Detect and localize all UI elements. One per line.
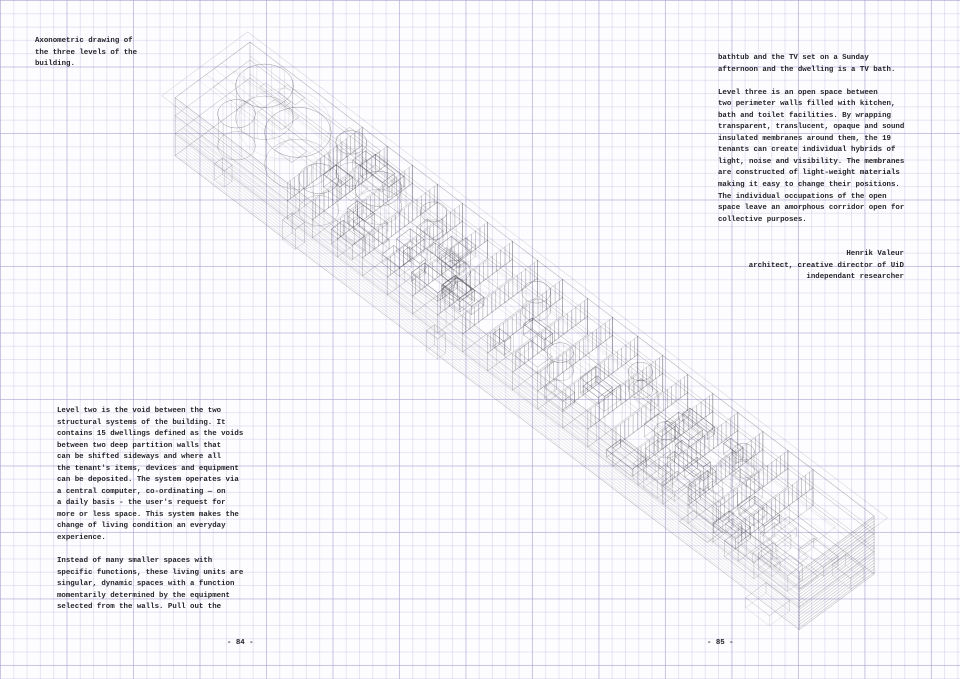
book-spread: Axonometric drawing ofthe three levels o… bbox=[0, 0, 960, 679]
text-line: space leave an amorphous corridor open f… bbox=[718, 203, 906, 215]
text-line: specific functions, these living units a… bbox=[57, 568, 249, 580]
text-line: Level two is the void between the two bbox=[57, 406, 249, 418]
text-line: structural systems of the building. It bbox=[57, 418, 249, 430]
text-line: more or less space. This system makes th… bbox=[57, 510, 249, 522]
text-line: Axonometric drawing of bbox=[35, 36, 155, 48]
text-line: Instead of many smaller spaces with bbox=[57, 556, 249, 568]
text-line: selected from the walls. Pull out the bbox=[57, 602, 249, 614]
text-line: bathtub and the TV set on a Sunday bbox=[718, 53, 906, 65]
text-line: can be shifted sideways and where all bbox=[57, 452, 249, 464]
text-line: experience. bbox=[57, 533, 249, 545]
text-line: momentarily determined by the equipment bbox=[57, 591, 249, 603]
text-line: are constructed of light-weight material… bbox=[718, 168, 906, 180]
text-line: a daily basis - the user's request for bbox=[57, 498, 249, 510]
text-line bbox=[718, 76, 906, 88]
caption-axonometric: Axonometric drawing ofthe three levels o… bbox=[35, 36, 155, 71]
text-line: The individual occupations of the open bbox=[718, 192, 906, 204]
text-line: collective purposes. bbox=[718, 215, 906, 227]
left-column-text: Level two is the void between the twostr… bbox=[57, 406, 249, 614]
text-line: architect, creative director of UiD bbox=[716, 261, 904, 273]
text-line: building. bbox=[35, 59, 155, 71]
text-line: change of living condition an everyday bbox=[57, 521, 249, 533]
text-line: light, noise and visibility. The membran… bbox=[718, 157, 906, 169]
text-line: a central computer, co-ordinating — on bbox=[57, 487, 249, 499]
attribution-text: Henrik Valeurarchitect, creative directo… bbox=[716, 249, 904, 284]
text-line: Henrik Valeur bbox=[716, 249, 904, 261]
page-number-right: - 85 - bbox=[707, 639, 734, 647]
text-line: independant researcher bbox=[716, 272, 904, 284]
text-line: bath and toilet facilities. By wrapping bbox=[718, 111, 906, 123]
text-line: making it easy to change their positions… bbox=[718, 180, 906, 192]
text-line bbox=[57, 545, 249, 557]
text-line: two perimeter walls filled with kitchen, bbox=[718, 99, 906, 111]
text-line: tenants can create individual hybrids of bbox=[718, 145, 906, 157]
page-number-left: - 84 - bbox=[227, 639, 254, 647]
text-line: insulated membranes around them, the 19 bbox=[718, 134, 906, 146]
text-line: the three levels of the bbox=[35, 48, 155, 60]
text-line: between two deep partition walls that bbox=[57, 441, 249, 453]
text-line: the tenant's items, devices and equipmen… bbox=[57, 464, 249, 476]
text-line: transparent, translucent, opaque and sou… bbox=[718, 122, 906, 134]
text-line: Level three is an open space between bbox=[718, 88, 906, 100]
text-line: singular, dynamic spaces with a function bbox=[57, 579, 249, 591]
text-line: afternoon and the dwelling is a TV bath. bbox=[718, 65, 906, 77]
text-line: contains 15 dwellings defined as the voi… bbox=[57, 429, 249, 441]
right-column-text: bathtub and the TV set on a Sundayaftern… bbox=[718, 53, 906, 226]
text-line: can be deposited. The system operates vi… bbox=[57, 475, 249, 487]
